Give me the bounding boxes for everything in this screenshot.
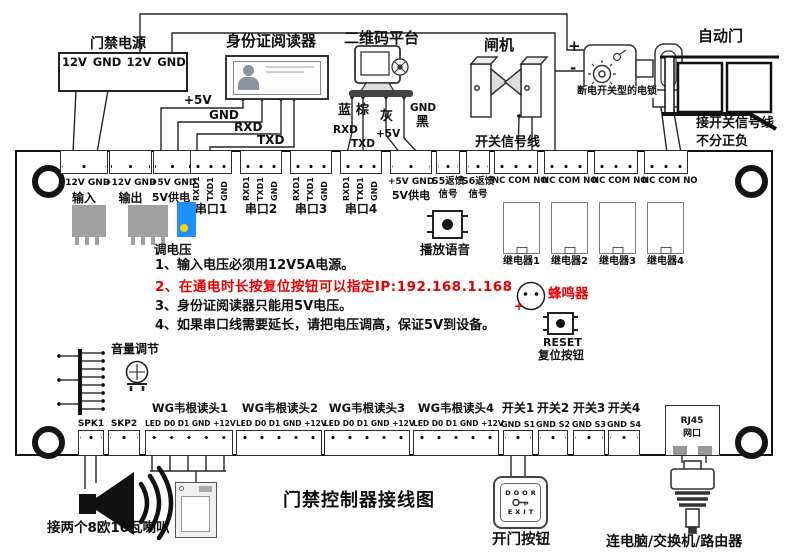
- qr-wire-blue: 蓝: [338, 104, 351, 119]
- wg4-group: WG韦根读头4: [417, 402, 495, 415]
- reader-face: [181, 496, 210, 532]
- skp2-label: SKP2: [104, 419, 144, 429]
- gate-wire-note: 开关信号线: [475, 136, 540, 151]
- auto-door-note2: 不分正负: [696, 135, 748, 150]
- terminal-block-s5: [436, 150, 460, 174]
- terminal-block-wg4: [413, 430, 499, 456]
- group-serial4: 串口4: [340, 203, 382, 217]
- terminal-block-serial3: [290, 150, 332, 174]
- qr-wire-gnd: GND: [410, 102, 436, 114]
- wg3-pins: LED D0 D1 GND +12V: [324, 420, 410, 429]
- terminal-label: GND: [155, 55, 188, 69]
- power-terminal-labels: 12V GND 12V GND: [58, 55, 188, 69]
- terminal-label: 12V: [123, 55, 155, 69]
- voltage-pot: [177, 202, 196, 237]
- terminal-block-sw1: [503, 430, 533, 456]
- wg3-group: WG韦根读头3: [328, 402, 406, 415]
- terminal-block-wg2: [236, 430, 322, 456]
- terminal-block-wg1: [145, 430, 233, 456]
- sw2-group: 开关2: [535, 402, 571, 416]
- serial1-pins: RXD1 TXD1 GND: [190, 176, 232, 201]
- relay-1: [503, 202, 540, 254]
- lock-label: 断电开关型的电锁: [577, 86, 657, 98]
- wg1-group: WG韦根读头1: [151, 402, 229, 415]
- pins-output: +12V GND: [104, 178, 156, 188]
- wg2-pins: LED D0 D1 GND +12V: [236, 420, 322, 429]
- note-4: 4、如果串口线需要延长，请把电压调高，保证5V到设备。: [155, 319, 495, 334]
- wiring-diagram-canvas: 门禁电源 12V GND 12V GND 身份证阅读器 +5V GND RXD …: [0, 0, 790, 558]
- lock-plus: +: [568, 38, 581, 55]
- terminal-block-skp2: [108, 430, 140, 456]
- serial3-pins: RXD1 TXD1 GND: [290, 176, 332, 201]
- sw1-pins: GND S1: [501, 420, 535, 429]
- exit-button-word-door: DOOR: [505, 489, 538, 497]
- qr-scanner-icon: [349, 46, 413, 97]
- mounting-hole: [735, 426, 768, 459]
- voltage-adjust-label: 调电压: [154, 243, 192, 257]
- signal-s6-line2: 信号: [459, 190, 497, 201]
- rj45-label-line2: 网口: [666, 429, 718, 439]
- sw2-pins: GND S2: [536, 420, 570, 429]
- qr-wire-black: 黑: [416, 116, 429, 131]
- sw1-group: 开关1: [500, 402, 536, 416]
- sw3-group: 开关3: [570, 402, 608, 416]
- rj45-port: RJ45 网口: [665, 405, 720, 456]
- wiegand-reader-device: [175, 482, 217, 538]
- key-icon: [511, 498, 531, 507]
- terminal-block-sw2: [538, 430, 568, 456]
- terminal-block-5v: [153, 150, 192, 174]
- terminal-block-wg3: [324, 430, 410, 456]
- pins-5v-2: +5V GND: [388, 177, 434, 187]
- auto-door-title: 自动门: [698, 28, 743, 45]
- terminal-block-serial1: [190, 150, 232, 174]
- mounting-hole: [735, 165, 768, 198]
- relay-4: [647, 202, 684, 254]
- exit-button-label: 开门按钮: [492, 532, 550, 549]
- terminal-block-relay2: [544, 150, 588, 174]
- relay3-label: 继电器3: [595, 256, 640, 268]
- wg2-group: WG韦根读头2: [241, 402, 319, 415]
- terminal-label: 12V: [58, 55, 91, 69]
- id-photo-head: [243, 65, 254, 76]
- group-serial1: 串口1: [190, 203, 232, 217]
- wg1-pins: LED D0 D1 GND +12V: [145, 420, 233, 429]
- sw3-pins: GND S3: [571, 420, 607, 429]
- electric-lock-icon: [584, 44, 682, 107]
- rj45-label-line1: RJ45: [666, 416, 718, 426]
- id-photo-body: [238, 77, 259, 90]
- auto-door-note1: 接开关信号线: [696, 117, 774, 132]
- reset-label2: 复位按钮: [538, 349, 584, 362]
- qr-wire-brown: 棕: [356, 104, 369, 119]
- id-card-line: [266, 71, 304, 73]
- exit-button-device: DOOR EXIT: [493, 476, 548, 529]
- reader-wire-5v: +5V: [184, 94, 212, 108]
- power-supply-title: 门禁电源: [90, 36, 146, 52]
- note-3: 3、身份证阅读器只能用5V电压。: [155, 300, 352, 315]
- pins-relay2: NC COM NO: [542, 177, 590, 187]
- terminal-block-spk1: [78, 430, 104, 456]
- volume-label: 音量调节: [111, 343, 159, 357]
- relay-3: [599, 202, 636, 254]
- voltage-regulator: [128, 205, 168, 237]
- page-title: 门禁控制器接线图: [283, 491, 435, 512]
- qr-platform-title: 二维码平台: [344, 30, 419, 47]
- voice-play-label: 播放语音: [420, 243, 470, 257]
- serial4-pins: RXD1 TXD1 GND: [340, 176, 382, 201]
- pins-5v: +5V GND: [150, 178, 195, 188]
- gate-title: 闸机: [484, 37, 514, 54]
- network-note: 连电脑/交换机/路由器: [606, 534, 742, 550]
- id-reader-title: 身份证阅读器: [226, 33, 316, 50]
- terminal-block-input: [60, 150, 108, 174]
- terminal-block-output: [109, 150, 152, 174]
- pins-relay3: NC COM NO: [592, 177, 640, 187]
- terminal-block-sw3: [573, 430, 605, 456]
- qr-wire-5v: +5V: [376, 128, 400, 140]
- group-serial3: 串口3: [290, 203, 332, 217]
- reader-led: [179, 486, 184, 491]
- terminal-block-serial4: [340, 150, 382, 174]
- relay4-label: 继电器4: [643, 256, 688, 268]
- relay2-label: 继电器2: [547, 256, 592, 268]
- sw4-pins: GND S4: [606, 420, 642, 429]
- rj45-plug-icon: [671, 461, 714, 533]
- terminal-label: GND: [91, 55, 123, 69]
- buzzer-label: 蜂鸣器: [548, 287, 589, 303]
- terminal-block-relay3: [594, 150, 638, 174]
- pins-relay1: NC COM NO: [492, 177, 540, 187]
- wg4-pins: LED D0 D1 GND +12V: [413, 420, 499, 429]
- note-2: 2、在通电时长按复位按钮可以指定IP:192.168.1.168: [155, 280, 513, 296]
- sw4-group: 开关4: [605, 402, 643, 416]
- group-serial2: 串口2: [240, 203, 282, 217]
- lock-minus: -: [570, 60, 576, 77]
- voltage-regulator: [72, 205, 106, 237]
- serial2-pins: RXD1 TXD1 GND: [240, 176, 282, 201]
- exit-button-word-exit: EXIT: [508, 508, 536, 516]
- rj45-foot: [673, 446, 687, 455]
- terminal-block-relay4: [644, 150, 688, 174]
- pins-relay4: NC COM NO: [642, 177, 690, 187]
- relay1-label: 继电器1: [499, 256, 544, 268]
- terminal-block-s6: [466, 150, 490, 174]
- note-1: 1、输入电压必须用12V5A电源。: [155, 259, 354, 274]
- qr-wire-txd: TXD: [351, 138, 375, 150]
- group-input: 输入: [60, 192, 108, 206]
- pot-dot: [180, 224, 188, 232]
- turnstile-icon: [471, 57, 547, 117]
- terminal-block-5v-2: [390, 150, 432, 174]
- mounting-hole: [32, 426, 65, 459]
- exit-button-face: DOOR EXIT: [500, 483, 541, 522]
- buzzer-plus: +: [514, 300, 524, 314]
- reader-chip: [199, 486, 212, 492]
- reader-wire-txd: TXD: [257, 134, 284, 148]
- id-card-line: [266, 66, 314, 68]
- speaker-note: 接两个8欧10瓦喇叭: [47, 521, 170, 537]
- terminal-block-relay1: [494, 150, 538, 174]
- qr-wire-rxd: RXD: [333, 124, 358, 136]
- rj45-foot: [698, 446, 712, 455]
- relay-2: [551, 202, 588, 254]
- terminal-block-sw4: [608, 430, 640, 456]
- qr-wire-gray: 灰: [380, 110, 393, 125]
- terminal-block-serial2: [240, 150, 282, 174]
